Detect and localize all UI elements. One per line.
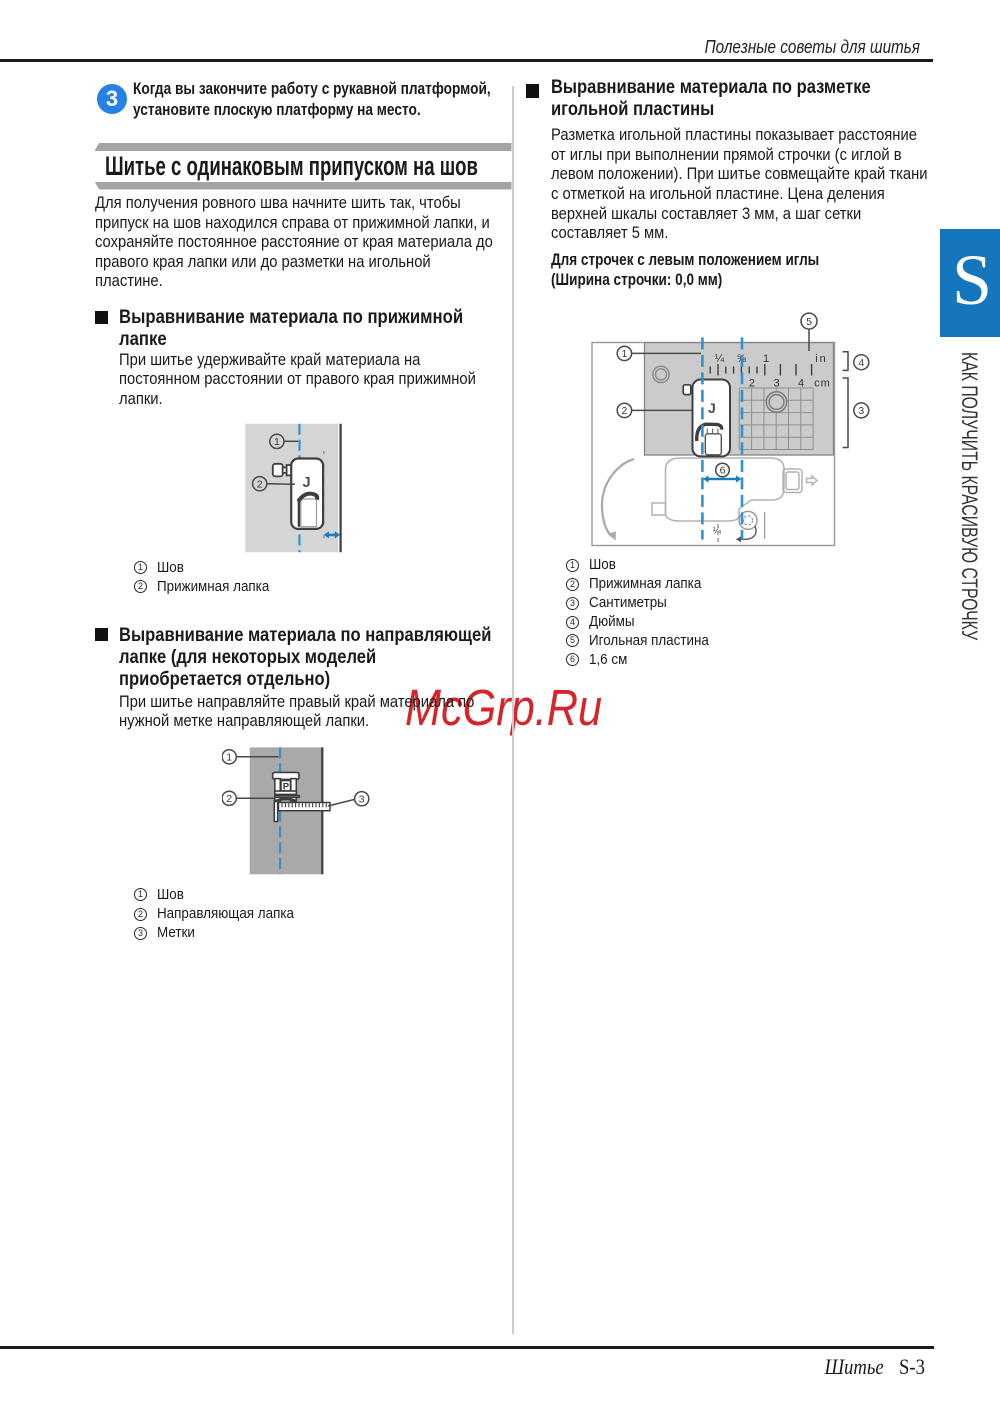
svg-text:1: 1	[274, 436, 280, 448]
svg-text:2: 2	[226, 793, 232, 805]
svg-text:cm: cm	[814, 378, 831, 390]
svg-text:3: 3	[359, 793, 365, 805]
svg-text:¼: ¼	[715, 353, 725, 365]
svg-text:P: P	[283, 782, 290, 793]
svg-text:3: 3	[773, 378, 779, 390]
svg-text:5: 5	[806, 316, 812, 328]
svg-text:4: 4	[858, 357, 864, 369]
svg-text:2: 2	[749, 378, 755, 390]
svg-text:J: J	[303, 475, 311, 491]
svg-text:2: 2	[621, 405, 627, 417]
svg-text:J: J	[708, 400, 716, 416]
svg-text:6: 6	[720, 465, 726, 477]
svg-text:1: 1	[621, 348, 627, 360]
svg-text:in: in	[815, 353, 828, 365]
svg-text:1: 1	[226, 752, 232, 764]
svg-text:3: 3	[858, 405, 864, 417]
svg-text:4: 4	[798, 378, 804, 390]
svg-text:2: 2	[257, 478, 263, 490]
svg-text:¼: ¼	[713, 524, 722, 536]
svg-text:1: 1	[763, 353, 769, 365]
